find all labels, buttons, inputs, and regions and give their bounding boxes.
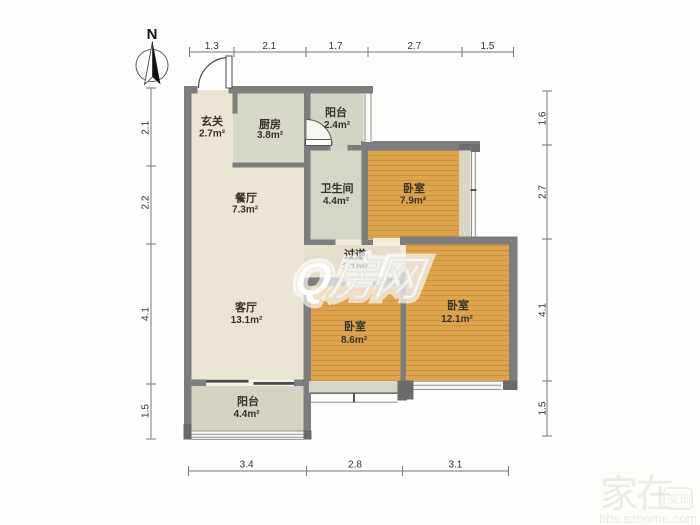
svg-text:2.7m²: 2.7m² [199,129,226,140]
svg-text:餐厅: 餐厅 [234,191,257,205]
svg-text:13.1m²: 13.1m² [231,315,263,326]
svg-text:卧室: 卧室 [344,319,366,333]
svg-text:2.1: 2.1 [262,41,276,52]
svg-text:1.5: 1.5 [141,404,152,418]
svg-text:N: N [147,26,158,43]
svg-text:8.6m²: 8.6m² [341,335,368,346]
svg-text:1.7: 1.7 [329,41,343,52]
svg-text:3.8m²: 3.8m² [257,130,284,141]
svg-text:2.7: 2.7 [407,41,421,52]
svg-text:3.4: 3.4 [240,460,254,471]
svg-text:阳台: 阳台 [237,394,259,408]
svg-text:4.4m²: 4.4m² [233,409,260,420]
svg-text:12.1m²: 12.1m² [441,314,473,325]
svg-text:1.5: 1.5 [480,41,494,52]
svg-text:阳台: 阳台 [325,105,347,119]
svg-text:7.9m²: 7.9m² [400,196,427,207]
svg-text:Q房网: Q房网 [291,253,432,306]
svg-text:2.2: 2.2 [141,195,152,209]
svg-text:2.1: 2.1 [141,120,152,134]
svg-text:bbs.szhome.com: bbs.szhome.com [599,511,697,525]
svg-text:4.1: 4.1 [538,303,549,317]
svg-text:卧室: 卧室 [447,298,469,312]
svg-text:2.8: 2.8 [348,460,362,471]
svg-text:家在: 家在 [600,474,672,516]
svg-text:厨房: 厨房 [259,117,281,131]
svg-text:卧室: 卧室 [403,181,425,195]
svg-text:4.1: 4.1 [141,307,152,321]
svg-text:玄关: 玄关 [201,114,223,128]
svg-text:1.6: 1.6 [538,111,549,125]
svg-text:7.3m²: 7.3m² [232,205,259,216]
svg-text:2.7: 2.7 [538,185,549,199]
svg-text:2.4m²: 2.4m² [324,120,351,131]
svg-text:1.3: 1.3 [205,41,219,52]
svg-text:深圳: 深圳 [667,493,691,507]
svg-text:卫生间: 卫生间 [321,181,354,195]
svg-text:4.4m²: 4.4m² [323,196,350,207]
svg-text:3.1: 3.1 [448,460,462,471]
svg-text:客厅: 客厅 [234,300,257,314]
svg-text:1.5: 1.5 [538,401,549,415]
